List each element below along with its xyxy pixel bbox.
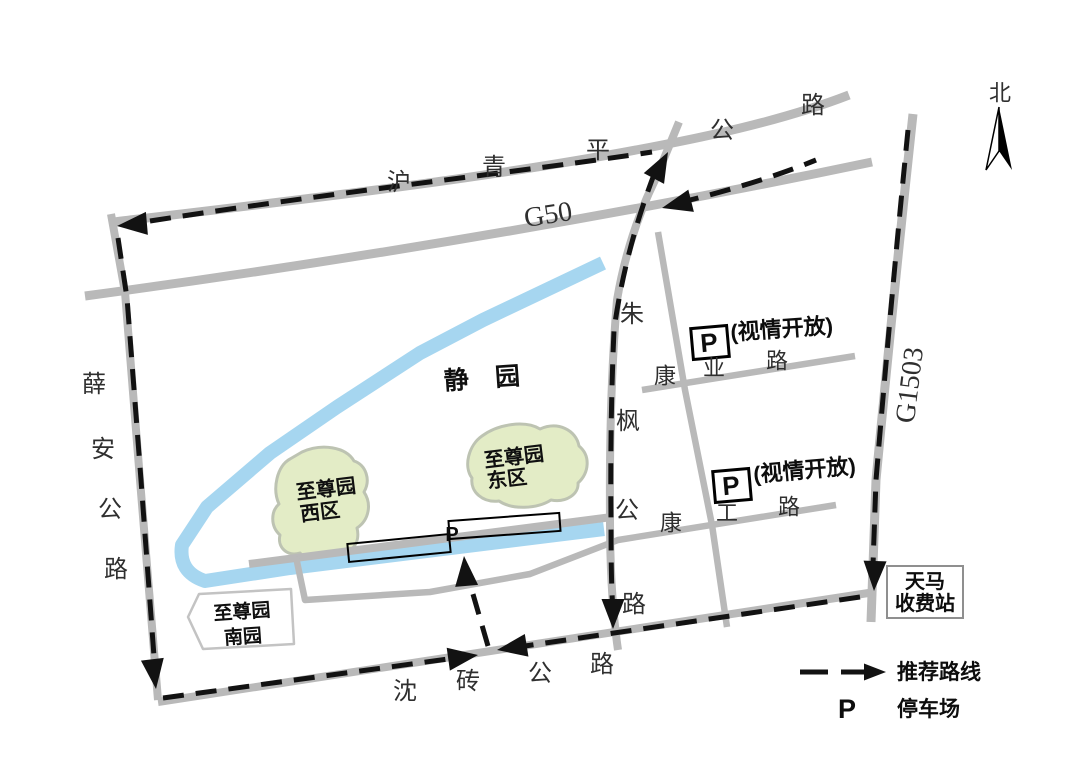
map-label-19-工: 工 <box>716 500 738 525</box>
arrow-g1503-south <box>864 561 887 591</box>
tianma-toll-line2: 收费站 <box>895 591 955 615</box>
huqingping-highway-road <box>113 95 849 222</box>
parking-box-kangye-note: (视情开放) <box>730 313 834 345</box>
parking-box-kangye-p: P <box>699 327 719 358</box>
map-label-4-路: 路 <box>801 92 825 119</box>
map-label-13-公: 公 <box>615 498 639 524</box>
map-label-5-G50: G50 <box>522 196 574 234</box>
map-label-14-路: 路 <box>622 591 646 618</box>
map-label-22-砖: 砖 <box>456 668 480 695</box>
map-label-7-薛: 薛 <box>82 371 106 398</box>
map-label-8-安: 安 <box>91 436 115 463</box>
legend-route-label: 推荐路线 <box>897 660 981 684</box>
map-label-0-沪: 沪 <box>387 169 411 196</box>
map-label-26-静园: 静 园 <box>443 361 531 396</box>
arrow-parking-access <box>455 556 478 587</box>
map-label-25-北: 北 <box>989 80 1011 105</box>
parking-box-kanggong-note: (视情开放) <box>752 453 856 487</box>
map-label-2-平: 平 <box>586 138 610 164</box>
arrow-zhufeng-north <box>644 152 668 184</box>
legend-parking-label: 停车场 <box>897 697 960 721</box>
legend-parking-symbol: P <box>838 694 856 724</box>
tianma-toll-line1: 天马 <box>905 571 945 593</box>
map-label-15-康: 康 <box>654 363 676 388</box>
map-label-11-朱: 朱 <box>620 301 644 328</box>
legend-route-arrow <box>864 664 886 681</box>
map-label-17-路: 路 <box>766 348 788 373</box>
map-label-21-沈: 沈 <box>393 678 417 705</box>
parking-strip-p-label: P <box>445 524 458 546</box>
compass-needle-east-half <box>999 107 1012 170</box>
map-label-6-G1503: G1503 <box>890 345 930 424</box>
map-label-20-路: 路 <box>778 494 800 519</box>
map-label-18-康: 康 <box>660 510 682 535</box>
map-label-9-公: 公 <box>98 497 122 523</box>
map-label-3-公: 公 <box>710 118 734 144</box>
map-label-10-路: 路 <box>104 556 128 583</box>
map-svg: PP(视情开放)P(视情开放)天马收费站至尊园南园推荐路线P停车场沪青平公路G5… <box>0 0 1080 764</box>
map-label-16-业: 业 <box>703 355 725 380</box>
map-label-24-路: 路 <box>590 651 614 678</box>
compass-needle-west-half <box>986 107 999 170</box>
map-label-23-公: 公 <box>528 661 552 687</box>
parking-box-kanggong-p: P <box>721 470 741 501</box>
map-label-12-枫: 枫 <box>616 408 640 435</box>
south-garden-label2: 南园 <box>223 625 262 650</box>
map-label-1-青: 青 <box>482 154 506 181</box>
side-connector-road <box>658 232 727 627</box>
map-page: PP(视情开放)P(视情开放)天马收费站至尊园南园推荐路线P停车场沪青平公路G5… <box>0 0 1080 764</box>
